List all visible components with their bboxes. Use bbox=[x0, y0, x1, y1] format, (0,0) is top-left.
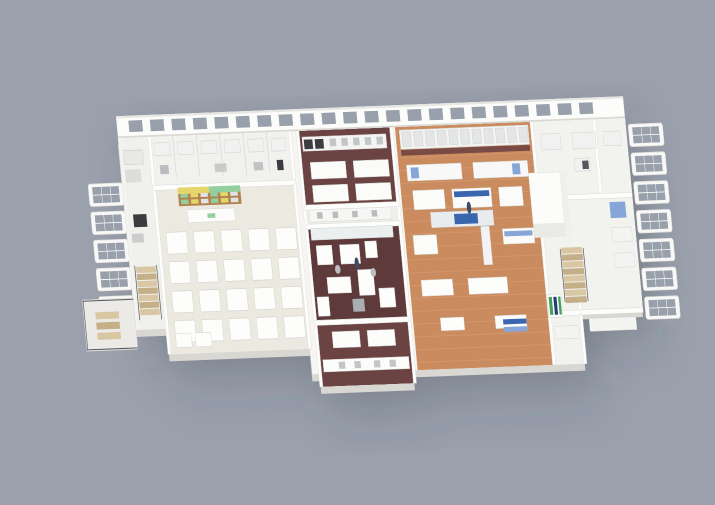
porch-table bbox=[195, 332, 212, 347]
left-stair-step bbox=[138, 287, 158, 294]
back-window bbox=[128, 120, 143, 133]
cafeteria-table bbox=[169, 261, 191, 284]
machine-unit bbox=[448, 130, 458, 145]
machine-unit bbox=[402, 132, 412, 147]
kiosk-good bbox=[231, 197, 239, 202]
right-stair-step bbox=[563, 268, 585, 275]
machine-unit bbox=[413, 131, 423, 146]
back-window bbox=[514, 104, 529, 117]
back-window bbox=[150, 119, 165, 132]
oven bbox=[315, 139, 324, 149]
scene-root bbox=[0, 0, 715, 505]
steel-unit bbox=[352, 299, 365, 312]
back-window bbox=[428, 108, 443, 121]
right-window-module bbox=[628, 123, 664, 147]
back-window bbox=[278, 114, 293, 127]
right-stair-step bbox=[561, 254, 583, 261]
cafeteria-table bbox=[172, 291, 194, 314]
left-window-module bbox=[91, 211, 127, 235]
cafeteria-table bbox=[229, 318, 251, 341]
cafeteria-table bbox=[283, 316, 305, 339]
floorplan-render bbox=[0, 0, 715, 505]
cafeteria-table bbox=[221, 230, 243, 253]
cafeteria-table bbox=[193, 231, 215, 254]
machine-unit bbox=[484, 128, 494, 143]
kiosk-roof-yellow bbox=[177, 186, 209, 194]
lab-instrument bbox=[160, 165, 169, 174]
machine-unit bbox=[437, 130, 447, 145]
cafeteria-table bbox=[248, 228, 270, 251]
clean-room-front bbox=[533, 223, 565, 238]
kiosk-good bbox=[221, 198, 229, 203]
right-stair-step bbox=[562, 261, 584, 268]
cafeteria-table bbox=[199, 289, 221, 312]
blue-crate-stack bbox=[503, 318, 527, 324]
right-window-module bbox=[641, 267, 677, 291]
clean-room-roof bbox=[528, 172, 564, 224]
right-window-module bbox=[644, 296, 680, 320]
clean-room bbox=[528, 172, 572, 238]
back-window bbox=[536, 104, 551, 117]
back-window bbox=[257, 115, 272, 128]
left-stair-step bbox=[136, 266, 156, 273]
robot-arm bbox=[582, 161, 589, 170]
back-window bbox=[450, 107, 465, 120]
back-window bbox=[385, 110, 400, 123]
back-window bbox=[471, 106, 486, 119]
kiosk-logo bbox=[207, 213, 215, 218]
back-window bbox=[235, 115, 250, 128]
right-window-module bbox=[639, 238, 675, 262]
cafeteria-table bbox=[251, 258, 273, 281]
machine-unit bbox=[425, 131, 435, 146]
cafeteria-table bbox=[223, 259, 245, 282]
right-window-module bbox=[636, 209, 672, 233]
back-window bbox=[171, 118, 186, 131]
porch-table bbox=[175, 333, 192, 348]
left-stair-step bbox=[139, 294, 159, 301]
zone-kitchen-front-floor bbox=[315, 319, 415, 387]
kiosk-good bbox=[211, 198, 219, 203]
left-window-module bbox=[93, 239, 129, 263]
kiosk-good bbox=[181, 199, 189, 204]
left-window-module bbox=[96, 267, 132, 291]
left-stair-step bbox=[139, 301, 159, 308]
machine-unit bbox=[507, 127, 517, 142]
left-stair-step bbox=[140, 309, 160, 316]
back-window bbox=[557, 103, 572, 116]
cafeteria-table bbox=[196, 260, 218, 283]
back-window bbox=[192, 117, 207, 130]
back-window bbox=[407, 109, 422, 122]
right-stair-step bbox=[561, 247, 583, 254]
cafeteria-table bbox=[226, 288, 248, 311]
right-stair-step bbox=[565, 296, 587, 303]
back-window bbox=[321, 112, 336, 125]
back-window bbox=[343, 111, 358, 124]
cafeteria-table bbox=[253, 287, 275, 310]
cafeteria-table bbox=[256, 317, 278, 340]
left-window-module bbox=[88, 183, 124, 207]
back-window bbox=[579, 102, 594, 115]
machine-unit bbox=[460, 129, 470, 144]
machine-unit bbox=[472, 129, 482, 144]
right-stair-step bbox=[563, 275, 585, 282]
left-stair-step bbox=[137, 280, 157, 287]
back-window bbox=[300, 113, 315, 126]
machine-unit bbox=[519, 127, 529, 142]
cafeteria-table bbox=[166, 232, 188, 255]
right-window-module bbox=[631, 152, 667, 176]
left-stair-step bbox=[137, 273, 157, 280]
machine-unit bbox=[495, 128, 505, 143]
green-cabinet bbox=[547, 294, 563, 318]
oven bbox=[304, 139, 313, 149]
kiosk-good bbox=[201, 199, 209, 204]
back-window bbox=[214, 116, 229, 129]
cafeteria-table bbox=[278, 257, 300, 280]
cafeteria-table bbox=[281, 286, 303, 309]
kiosk-good bbox=[191, 199, 199, 204]
right-stair-step bbox=[565, 289, 587, 296]
cafeteria-table bbox=[275, 227, 297, 250]
right-stair-step bbox=[564, 282, 586, 289]
back-window bbox=[493, 105, 508, 118]
blue-instrument bbox=[609, 201, 626, 218]
right-window-module bbox=[633, 181, 669, 205]
left-balcony bbox=[82, 298, 138, 351]
copier bbox=[133, 214, 147, 227]
kiosk-awning-green bbox=[209, 185, 241, 193]
back-window bbox=[364, 110, 379, 123]
